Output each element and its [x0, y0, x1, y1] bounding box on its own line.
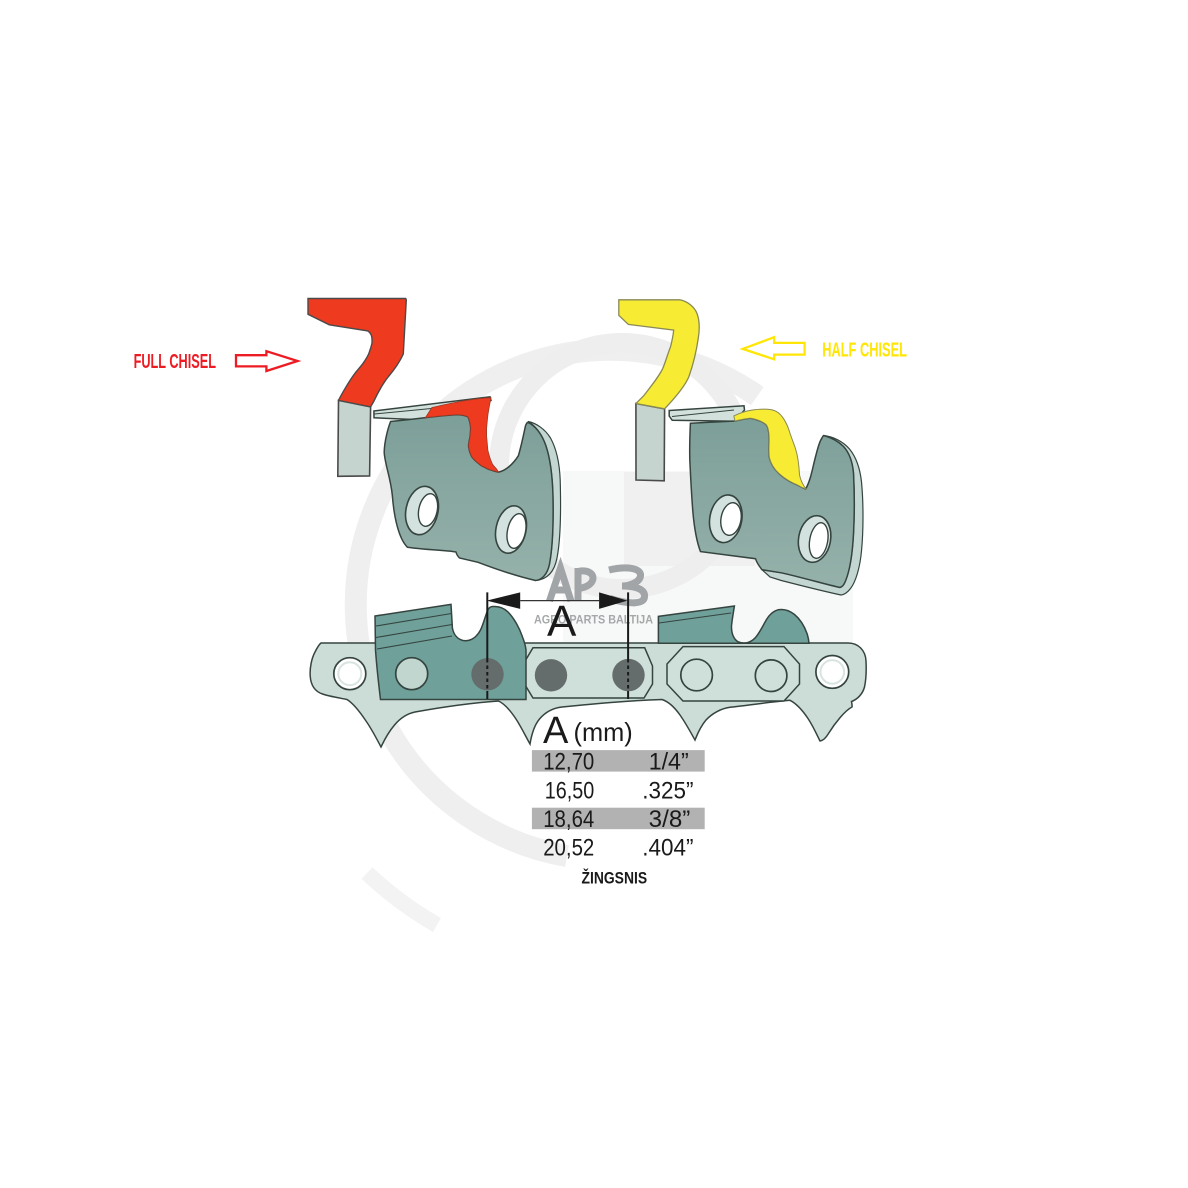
svg-text:ŽINGSNIS: ŽINGSNIS [582, 869, 648, 888]
svg-text:16,50: 16,50 [545, 777, 595, 804]
svg-text:20,52: 20,52 [543, 835, 594, 862]
svg-text:1/4”: 1/4” [649, 749, 689, 776]
svg-text:.325”: .325” [642, 777, 693, 804]
svg-text:(mm): (mm) [574, 717, 633, 747]
svg-text:.404”: .404” [642, 835, 693, 862]
svg-text:FULL CHISEL: FULL CHISEL [134, 351, 216, 373]
svg-text:18,64: 18,64 [543, 806, 594, 833]
svg-text:A: A [543, 710, 569, 752]
svg-text:12,70: 12,70 [543, 749, 594, 776]
svg-text:3/8”: 3/8” [649, 806, 691, 833]
svg-text:A: A [547, 597, 577, 646]
svg-text:HALF CHISEL: HALF CHISEL [822, 339, 907, 361]
